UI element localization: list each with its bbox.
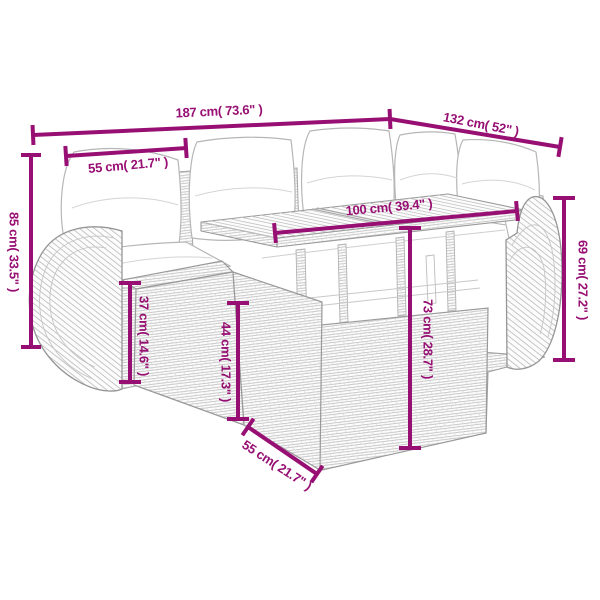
dimension-tick bbox=[399, 226, 421, 230]
dimension-tick bbox=[21, 345, 41, 349]
dimension-line bbox=[562, 198, 566, 360]
dimension-tick bbox=[553, 358, 575, 362]
dimension-line bbox=[128, 283, 132, 382]
sofa-front-height-label: 73 cm( 28.7" ) bbox=[421, 299, 436, 379]
left-armrest bbox=[29, 227, 122, 391]
dimension-tick bbox=[119, 380, 141, 384]
dimension-tick bbox=[227, 417, 249, 421]
dimension-line bbox=[29, 156, 33, 348]
dimension-tick bbox=[553, 196, 575, 200]
table-height-label: 44 cm( 17.3" ) bbox=[219, 322, 234, 402]
seat-height-label: 37 cm( 14.6" ) bbox=[137, 296, 152, 376]
armrest-height-label: 69 cm( 27.2" ) bbox=[576, 240, 591, 320]
dimension-tick bbox=[119, 281, 141, 285]
dimension-tick bbox=[21, 153, 41, 157]
dimension-line bbox=[408, 228, 412, 448]
dimension-tick bbox=[399, 446, 421, 450]
product-dimension-diagram: 187 cm( 73.6" ) 132 cm( 52" ) 55 cm( 21.… bbox=[0, 0, 600, 600]
furniture-illustration bbox=[0, 0, 600, 600]
dimension-tick bbox=[31, 125, 36, 145]
back-height-label: 85 cm( 33.5" ) bbox=[7, 212, 22, 292]
dimension-line bbox=[236, 303, 240, 419]
dimension-tick bbox=[227, 301, 249, 305]
